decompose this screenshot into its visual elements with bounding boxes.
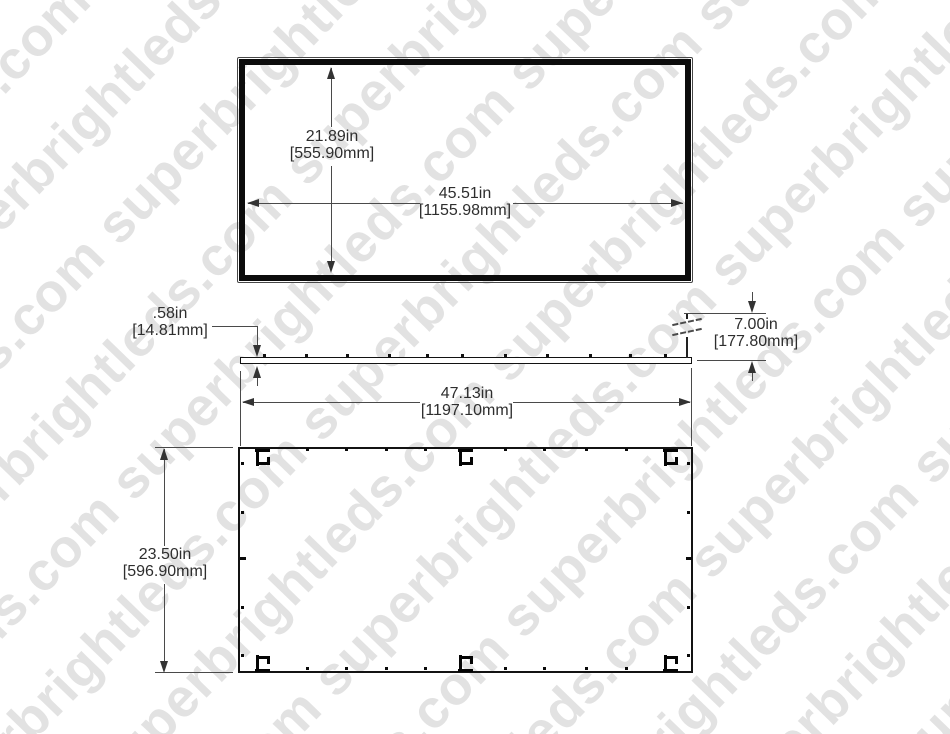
overall-width-dim-line <box>513 402 690 403</box>
edge-dot <box>385 448 388 451</box>
overall-width-ext-line <box>691 368 692 446</box>
edge-dot <box>385 667 388 670</box>
drop-mm-label: [177.80mm] <box>706 334 806 350</box>
arrow-down-icon <box>160 661 168 673</box>
bar-tick <box>629 354 632 357</box>
arrow-left-icon <box>242 398 254 406</box>
thickness-mm-label: [14.81mm] <box>130 323 210 339</box>
edge-dot <box>585 667 588 670</box>
top-height-in-label: 21.89in <box>262 129 402 145</box>
c-tick <box>675 656 678 664</box>
edge-dot <box>241 462 244 465</box>
arrow-right-icon <box>679 398 691 406</box>
arrow-up-icon <box>253 366 261 378</box>
edge-dot <box>241 606 244 609</box>
c-tick <box>470 656 473 664</box>
drop-dim-line <box>752 373 753 381</box>
mounting-clip-icon <box>663 655 680 672</box>
arrow-up-icon <box>327 67 335 79</box>
top-width-in-label: 45.51in <box>395 186 535 202</box>
overall-width-dim-line <box>243 402 420 403</box>
c-tick <box>267 656 270 664</box>
top-height-mm-label: [555.90mm] <box>262 146 402 162</box>
back-height-dim-line <box>164 584 165 661</box>
mounting-clip-icon <box>458 449 475 466</box>
edge-dot <box>686 557 692 560</box>
width-dim-line <box>513 203 683 204</box>
height-dim-line <box>331 166 332 261</box>
edge-dot <box>241 511 244 514</box>
back-view-panel <box>238 447 693 673</box>
mounting-clip-icon <box>663 449 680 466</box>
thickness-leader-line <box>212 326 258 327</box>
thickness-dim-line <box>257 378 258 386</box>
edge-dot <box>345 448 348 451</box>
edge-dot <box>687 606 690 609</box>
edge-dot <box>687 511 690 514</box>
edge-dot <box>240 557 246 560</box>
c-tick <box>267 457 270 465</box>
arrow-down-icon <box>253 345 261 357</box>
overall-width-in-label: 47.13in <box>397 386 537 402</box>
bar-tick <box>263 354 266 357</box>
bar-tick <box>346 354 349 357</box>
c-tick <box>675 457 678 465</box>
bar-tick <box>664 354 667 357</box>
edge-dot <box>625 667 628 670</box>
bar-tick <box>426 354 429 357</box>
bar-tick <box>461 354 464 357</box>
c-tick <box>470 457 473 465</box>
bar-tick <box>305 354 308 357</box>
edge-dot <box>687 654 690 657</box>
edge-dot <box>424 448 427 451</box>
suspension-line <box>686 337 688 358</box>
bar-tick <box>504 354 507 357</box>
thickness-leader-line <box>257 326 258 346</box>
overall-width-mm-label: [1197.10mm] <box>397 403 537 419</box>
bar-tick <box>546 354 549 357</box>
edge-dot <box>241 654 244 657</box>
top-view-frame-band <box>239 59 691 281</box>
arrow-up-icon <box>748 361 756 373</box>
mounting-clip-icon <box>458 655 475 672</box>
drop-ext-line <box>684 313 766 314</box>
mounting-clip-icon <box>255 655 272 672</box>
edge-dot <box>585 448 588 451</box>
drop-in-label: 7.00in <box>706 317 806 333</box>
thickness-in-label: .58in <box>130 306 210 322</box>
arrow-down-icon <box>748 301 756 313</box>
edge-dot <box>543 448 546 451</box>
back-height-dim-line <box>164 449 165 546</box>
edge-dot <box>306 448 309 451</box>
overall-width-ext-line <box>240 371 241 446</box>
edge-dot <box>687 462 690 465</box>
mounting-clip-icon <box>255 449 272 466</box>
edge-dot <box>625 448 628 451</box>
top-view-frame <box>237 57 693 283</box>
edge-dot <box>504 448 507 451</box>
edge-dot <box>306 667 309 670</box>
arrow-right-icon <box>671 199 683 207</box>
bar-tick <box>388 354 391 357</box>
edge-dot <box>543 667 546 670</box>
back-height-in-label: 23.50in <box>95 547 235 563</box>
edge-dot <box>504 667 507 670</box>
technical-drawing: superbrightleds.com superbrightleds.com … <box>0 0 950 734</box>
arrow-down-icon <box>327 261 335 273</box>
side-profile-bar <box>240 357 692 364</box>
top-width-mm-label: [1155.98mm] <box>395 203 535 219</box>
arrow-up-icon <box>160 448 168 460</box>
arrow-left-icon <box>247 199 259 207</box>
bar-tick <box>589 354 592 357</box>
back-height-mm-label: [596.90mm] <box>95 564 235 580</box>
edge-dot <box>345 667 348 670</box>
edge-dot <box>424 667 427 670</box>
